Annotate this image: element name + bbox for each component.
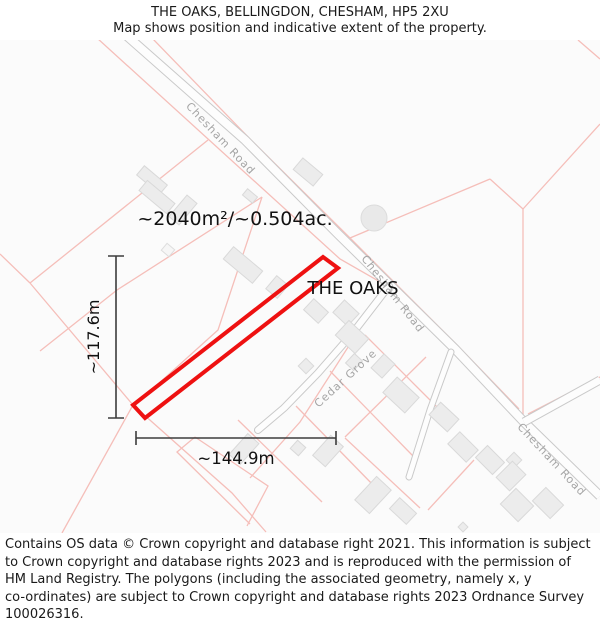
tree-canopy-circle <box>361 205 387 231</box>
building <box>313 435 344 466</box>
map-header: THE OAKS, BELLINGDON, CHESHAM, HP5 2XU M… <box>0 0 600 40</box>
building <box>448 432 478 462</box>
building <box>290 440 306 456</box>
building <box>383 377 419 413</box>
copyright-notice: Contains OS data © Crown copyright and d… <box>5 536 599 624</box>
height-dimension-label: ~117.6m <box>84 300 103 375</box>
building <box>304 299 329 324</box>
page-title: THE OAKS, BELLINGDON, CHESHAM, HP5 2XU <box>0 0 600 21</box>
copyright-line: HM Land Registry. The polygons (includin… <box>5 571 599 589</box>
building <box>355 476 391 513</box>
copyright-line: 100026316. <box>5 606 599 624</box>
map-container: Chesham Road Chesham Road Chesham Road C… <box>0 40 600 533</box>
building <box>298 358 314 374</box>
building <box>223 247 262 284</box>
building <box>476 446 505 475</box>
copyright-line: co-ordinates) are subject to Crown copyr… <box>5 589 599 607</box>
building <box>293 158 323 186</box>
width-dimension-line: ~144.9m <box>136 431 336 468</box>
building <box>458 522 468 532</box>
building <box>333 300 359 326</box>
building <box>532 487 563 518</box>
road-branch <box>524 380 600 422</box>
copyright-line: Contains OS data © Crown copyright and d… <box>5 536 599 554</box>
height-dimension-line: ~117.6m <box>84 256 124 418</box>
area-label: ~2040m²/~0.504ac. <box>137 208 332 230</box>
map-canvas: Chesham Road Chesham Road Chesham Road C… <box>0 40 600 533</box>
copyright-line: to Crown copyright and database rights 2… <box>5 554 599 572</box>
page-subtitle: Map shows position and indicative extent… <box>0 21 600 37</box>
building <box>500 488 533 521</box>
width-dimension-label: ~144.9m <box>197 449 274 468</box>
road-label-chesham-bottom: Chesham Road <box>515 421 589 499</box>
property-name-label: THE OAKS <box>306 278 398 299</box>
road-label-cedar-grove: Cedar Grove <box>312 347 380 411</box>
